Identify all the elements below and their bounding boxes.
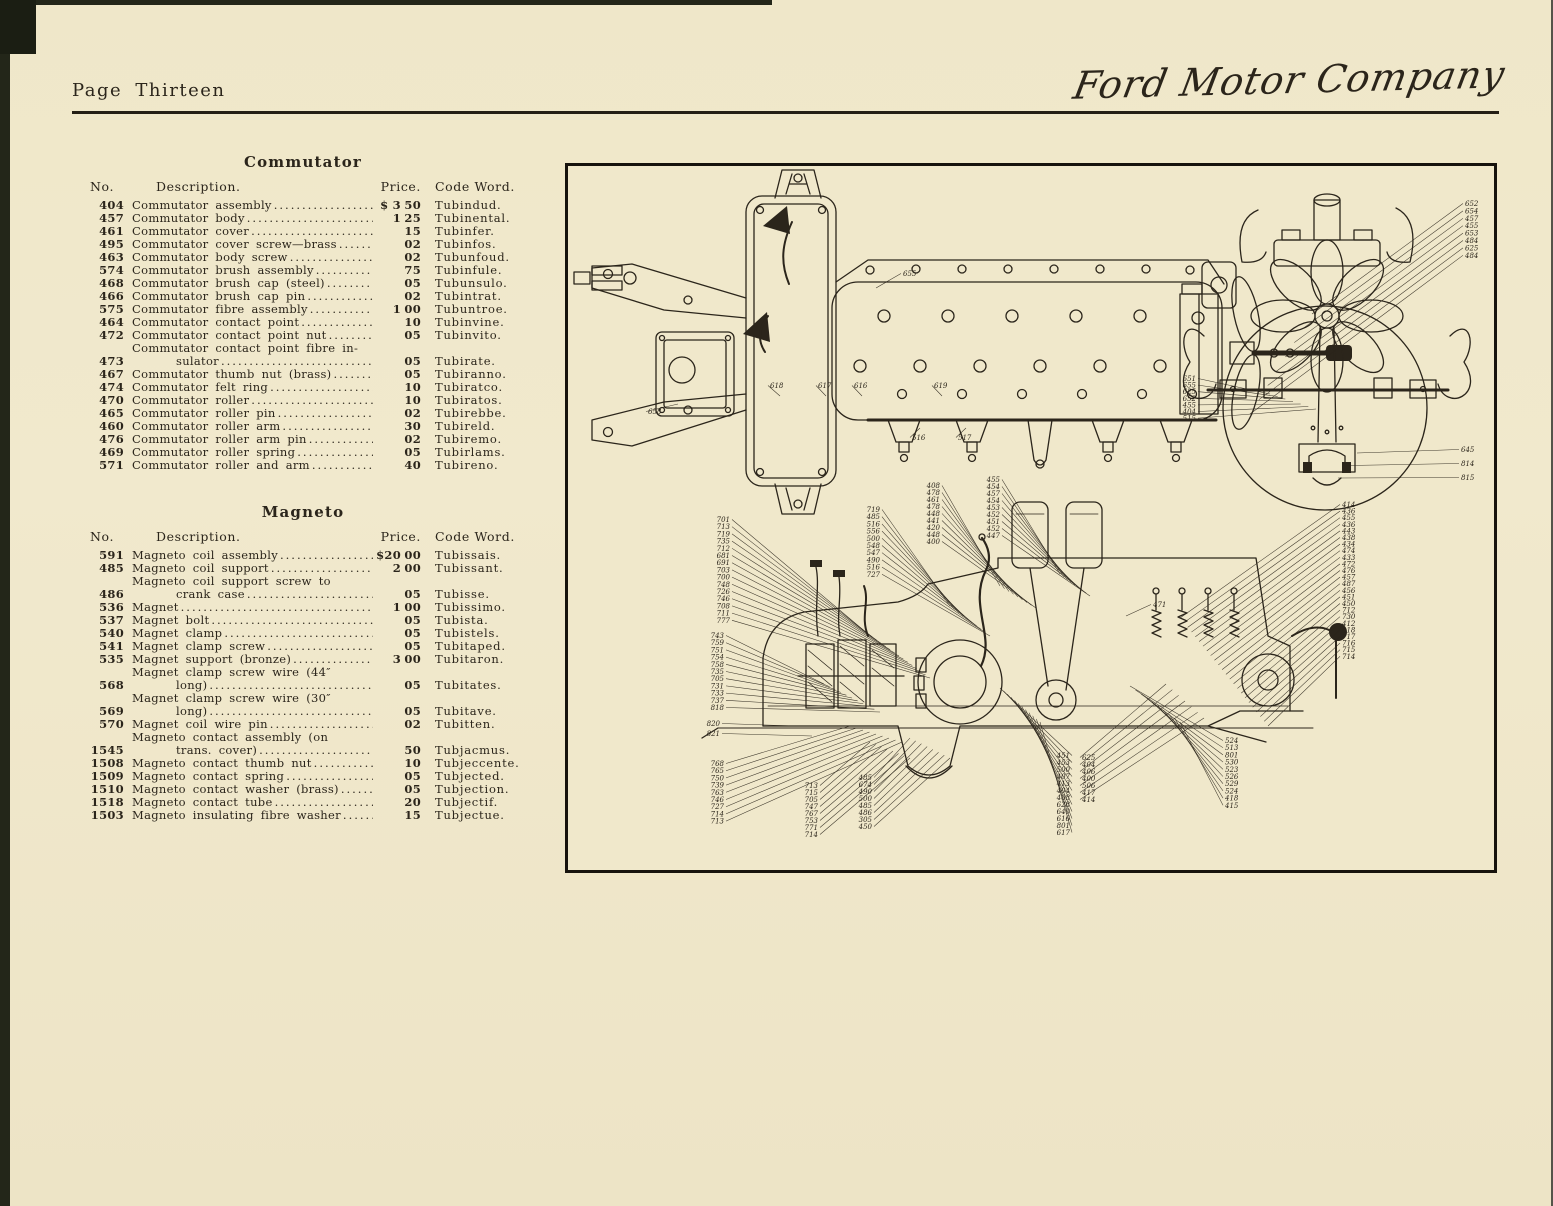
part-number-label: 450 xyxy=(858,823,873,831)
leader-line xyxy=(1002,529,1086,594)
leader-line xyxy=(1130,686,1223,741)
code-word: Tubjectue. xyxy=(421,809,518,822)
price-cents: 40 xyxy=(401,459,421,472)
part-number-label: 655 xyxy=(903,270,917,278)
part-number-label: 727 xyxy=(867,571,881,579)
part-number-label: 713 xyxy=(711,818,725,826)
price-dollars: 3 xyxy=(375,653,401,666)
table-row: 473Commutator contact point fibre in-sul… xyxy=(88,342,518,368)
leader-line xyxy=(1080,690,1172,765)
leader-line xyxy=(1180,505,1340,619)
leader-line xyxy=(1222,577,1340,670)
leader-line xyxy=(732,606,921,672)
magneto-rows: 591Magneto coil assembly$2000Tubissais.4… xyxy=(88,549,518,822)
leader-line xyxy=(882,553,977,626)
leader-line xyxy=(1338,478,1459,479)
price-cents: 05 xyxy=(401,329,421,342)
part-number: 568 xyxy=(88,679,132,692)
price-dollars: 1 xyxy=(375,303,401,316)
leader-line xyxy=(722,734,812,737)
part-number-label: 814 xyxy=(1461,460,1474,468)
part-number-label: 400 xyxy=(926,538,941,546)
description-line: Magnet clamp screw wire (44″ xyxy=(132,666,375,679)
price-dollars: 1 xyxy=(375,212,401,225)
description-line: Magneto coil support screw to xyxy=(132,575,375,588)
dot-leader xyxy=(211,614,373,627)
leader-line xyxy=(820,751,893,813)
table-row: 486Magneto coil support screw tocrank ca… xyxy=(88,575,518,601)
leader-line xyxy=(726,664,846,695)
leader-line xyxy=(1218,571,1340,665)
dot-leader xyxy=(278,407,373,420)
leader-line xyxy=(1011,697,1072,776)
leader-line xyxy=(726,726,850,764)
leader-line xyxy=(1348,464,1460,466)
part-description: Commutator roller and arm xyxy=(132,459,375,472)
leader-line xyxy=(1294,218,1463,342)
leader-line xyxy=(722,724,796,727)
commutator-table: Commutator No. Description. Price. Code … xyxy=(88,153,518,472)
plan-view xyxy=(574,170,1352,514)
column-header-description: Description. xyxy=(132,179,375,194)
dot-leader xyxy=(333,368,373,381)
description-text: crank case xyxy=(176,588,245,601)
leader-line xyxy=(882,574,990,636)
leader-line xyxy=(1195,531,1340,637)
column-header-codeword: Code Word. xyxy=(421,179,518,194)
dot-leader xyxy=(309,433,373,446)
leader-line xyxy=(1234,597,1340,684)
dot-leader xyxy=(247,588,373,601)
description-text: Magneto insulating fibre washer xyxy=(132,809,341,822)
dot-leader xyxy=(270,381,373,394)
code-word: Tubitten. xyxy=(421,718,518,731)
leader-line xyxy=(1285,226,1463,357)
dot-leader xyxy=(339,238,373,251)
part-number-label: 515 xyxy=(1183,415,1197,423)
column-header-price: Price. xyxy=(375,179,421,194)
part-number-label: 714 xyxy=(1342,653,1355,661)
part-number-label: 616 xyxy=(854,382,868,390)
dot-leader xyxy=(343,809,373,822)
leader-line xyxy=(1198,398,1293,401)
part-number-label: 820 xyxy=(707,720,721,728)
leader-line xyxy=(1226,584,1340,675)
code-word: Tubitaron. xyxy=(421,653,518,666)
leader-line xyxy=(1230,590,1340,679)
leader-line xyxy=(1080,707,1191,786)
code-word: Tubinvito. xyxy=(421,329,518,342)
price-dollars: 1 xyxy=(375,601,401,614)
dot-leader xyxy=(181,601,373,614)
leader-line xyxy=(1080,718,1204,800)
part-number: 571 xyxy=(88,459,132,472)
column-header-description: Description. xyxy=(132,529,375,544)
dot-leader xyxy=(247,212,373,225)
leader-line xyxy=(726,657,841,692)
part-number-label: 815 xyxy=(1461,474,1475,482)
dot-leader xyxy=(327,277,373,290)
leader-line xyxy=(726,643,830,687)
description-line: Commutator roller and arm xyxy=(132,459,375,472)
leader-line xyxy=(882,560,981,629)
magneto-title: Magneto xyxy=(88,503,518,521)
column-header-price: Price. xyxy=(375,529,421,544)
table-row: 569Magnet clamp screw wire (30″long)05Tu… xyxy=(88,692,518,718)
leader-line xyxy=(882,567,986,633)
dot-leader xyxy=(312,459,373,472)
description-line: Magnet clamp screw wire (30″ xyxy=(132,692,375,705)
leader-line xyxy=(1163,710,1223,784)
part-number-label: 517 xyxy=(958,434,972,442)
table-row: 1503Magneto insulating fibre washer15Tub… xyxy=(88,809,518,822)
part-description: Magnet clamp screw wire (30″long) xyxy=(132,692,375,718)
description-line: Commutator contact point fibre in- xyxy=(132,342,375,355)
leader-line xyxy=(1268,241,1463,386)
table-row: 1545Magneto contact assembly (ontrans. c… xyxy=(88,731,518,757)
price-dollars: 2 xyxy=(375,562,401,575)
part-number-label: 617 xyxy=(1057,829,1071,837)
leader-line xyxy=(726,732,870,785)
code-word: Tubissant. xyxy=(421,562,518,575)
part-number-label: 645 xyxy=(1461,446,1475,454)
diagram-labels: 6556586186176166195165174716526544574556… xyxy=(646,200,1479,839)
code-word: Tubireno. xyxy=(421,459,518,472)
leader-line xyxy=(1080,695,1179,771)
part-number-label: 617 xyxy=(818,382,832,390)
dot-leader xyxy=(310,303,373,316)
scan-edge-left xyxy=(0,0,10,1206)
price-cents: 05 xyxy=(401,679,421,692)
price-cents: 00 xyxy=(401,653,421,666)
leader-line xyxy=(1245,617,1340,698)
price-cents: 00 xyxy=(401,562,421,575)
leader-line xyxy=(726,730,863,778)
leader-line xyxy=(876,274,901,289)
dot-leader xyxy=(274,199,373,212)
leader-line xyxy=(1211,557,1340,655)
part-number-label: 471 xyxy=(1152,601,1166,609)
code-word: Tubitates. xyxy=(421,679,518,692)
part-number: 472 xyxy=(88,329,132,342)
leader-line xyxy=(1152,702,1223,769)
table-row: 568Magnet clamp screw wire (44″long)05Tu… xyxy=(88,666,518,692)
brand-signature: Ford Motor Company xyxy=(1070,52,1509,108)
part-number-label: 777 xyxy=(717,617,731,625)
leader-line xyxy=(726,650,835,690)
part-number-label: 516 xyxy=(912,434,926,442)
commutator-header-row: No. Description. Price. Code Word. xyxy=(88,179,518,194)
column-header-no: No. xyxy=(88,529,132,544)
leader-line xyxy=(1191,524,1340,632)
leader-line xyxy=(1015,700,1072,783)
leader-line xyxy=(1257,637,1340,712)
leader-line xyxy=(1259,248,1463,400)
dot-leader xyxy=(280,549,373,562)
leader-line xyxy=(882,546,972,623)
dot-leader xyxy=(341,783,373,796)
header-rule xyxy=(72,111,1499,114)
leader-line xyxy=(1268,656,1340,726)
description-line: Magneto insulating fibre washer xyxy=(132,809,375,822)
leader-line xyxy=(874,758,950,827)
leader-line xyxy=(1080,712,1198,792)
scan-edge-corner xyxy=(0,0,36,54)
leader-line xyxy=(874,738,910,778)
leader-line xyxy=(1002,522,1083,591)
leader-line xyxy=(732,534,877,640)
engine-diagram-frame: 6556586186176166195165174716526544574556… xyxy=(565,163,1497,873)
column-header-no: No. xyxy=(88,179,132,194)
part-number-label: 484 xyxy=(1464,252,1478,260)
description-text: Commutator roller and arm xyxy=(132,459,310,472)
magneto-header-row: No. Description. Price. Code Word. xyxy=(88,529,518,544)
commutator-title: Commutator xyxy=(88,153,518,171)
scan-edge-top xyxy=(0,0,772,5)
part-number-label: 818 xyxy=(711,704,725,712)
leader-line xyxy=(874,755,944,819)
part-number-label: 415 xyxy=(1224,802,1239,810)
part-description: Magneto contact assembly (ontrans. cover… xyxy=(132,731,375,757)
part-description: Magnet clamp screw wire (44″long) xyxy=(132,666,375,692)
leader-line xyxy=(1303,211,1463,328)
part-number-label: 821 xyxy=(707,730,720,738)
leader-line xyxy=(1312,204,1463,315)
leader-line xyxy=(732,548,886,646)
commutator-rows: 404Commutator assembly$ 350Tubindud.457C… xyxy=(88,199,518,472)
leader-line xyxy=(1002,515,1079,588)
part-number: 535 xyxy=(88,653,132,666)
leader-line xyxy=(820,747,881,800)
part-number: 1503 xyxy=(88,809,132,822)
column-header-codeword: Code Word. xyxy=(421,529,518,544)
leader-line xyxy=(1253,630,1340,707)
leader-line xyxy=(732,541,881,643)
part-number-label: 714 xyxy=(805,831,818,839)
part-number-label: 447 xyxy=(986,532,1001,540)
table-row: 571Commutator roller and arm40Tubireno. xyxy=(88,459,518,472)
leader-line xyxy=(732,520,868,635)
leader-line xyxy=(1184,511,1340,623)
leader-line xyxy=(1198,404,1301,405)
price-cents: 02 xyxy=(401,718,421,731)
price-cents: 15 xyxy=(401,809,421,822)
part-description: Commutator contact point fibre in-sulato… xyxy=(132,342,375,368)
magneto-table: Magneto No. Description. Price. Code Wor… xyxy=(88,503,518,822)
leader-line xyxy=(1126,605,1151,617)
leader-line xyxy=(1277,233,1463,371)
part-number: 485 xyxy=(88,562,132,575)
leader-line xyxy=(1357,450,1459,454)
leader-line xyxy=(1180,722,1223,805)
leader-line xyxy=(732,570,899,656)
part-number-label: 619 xyxy=(934,382,948,390)
dot-leader xyxy=(307,290,373,303)
dot-leader xyxy=(314,757,373,770)
engine-diagram: 6556586186176166195165174716526544574556… xyxy=(568,166,1494,870)
part-description: Magneto coil support screw tocrank case xyxy=(132,575,375,601)
page-number-label: Page Thirteen xyxy=(72,80,226,101)
part-number: 570 xyxy=(88,718,132,731)
part-description: Magneto insulating fibre washer xyxy=(132,809,375,822)
leader-line xyxy=(874,744,921,792)
